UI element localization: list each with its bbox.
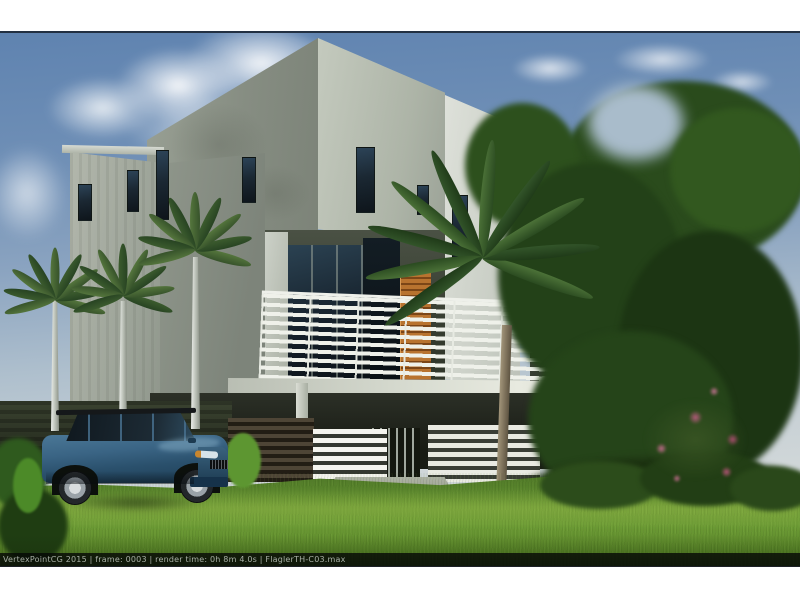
watermark-text: VertexPointCG 2015 | frame: 0003 | rende…	[0, 553, 346, 566]
rendering-photo: VertexPointCG 2015 | frame: 0003 | rende…	[0, 31, 800, 567]
sky-gap	[588, 85, 683, 160]
blue-suv	[40, 411, 232, 515]
window	[356, 147, 375, 213]
window	[156, 150, 169, 220]
side-mirror	[188, 438, 196, 443]
window	[78, 184, 92, 221]
foliage-blob	[670, 108, 800, 233]
grille	[210, 460, 228, 469]
watermark-bar: VertexPointCG 2015 | frame: 0003 | rende…	[0, 553, 800, 566]
headlight	[195, 450, 218, 458]
bumper	[190, 477, 228, 487]
car-cabin-windows	[58, 411, 196, 441]
window	[242, 157, 256, 203]
window	[127, 170, 139, 212]
flowering-bush	[618, 368, 773, 498]
side-sill-shadow	[46, 471, 194, 484]
